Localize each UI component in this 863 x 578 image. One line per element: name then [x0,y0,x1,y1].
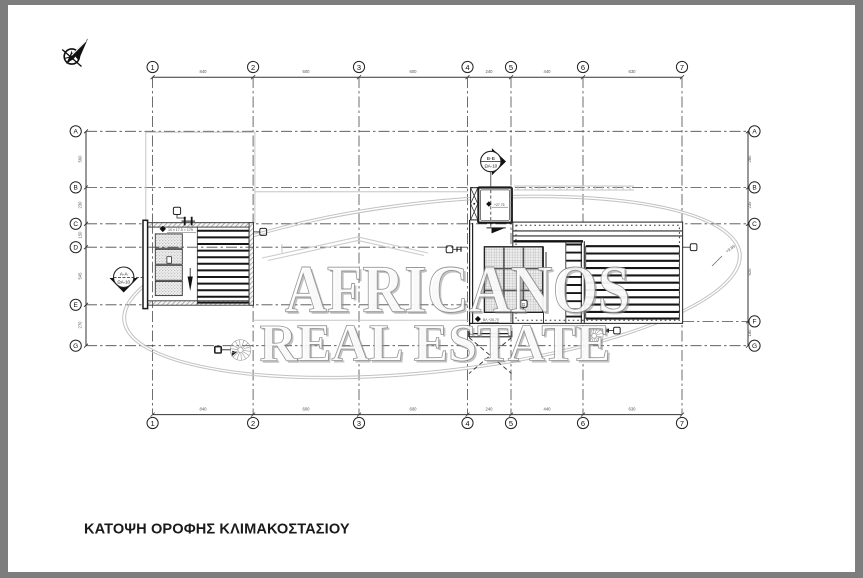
svg-text:600: 600 [410,407,418,412]
svg-text:3: 3 [357,419,361,428]
svg-text:840: 840 [200,69,208,74]
svg-text:2: 2 [251,419,255,428]
svg-text:F: F [753,319,757,326]
svg-text:4: 4 [465,419,469,428]
svg-text:270: 270 [78,321,83,329]
svg-text:545: 545 [78,272,83,280]
svg-text:+27.75: +27.75 [494,203,505,207]
svg-text:230: 230 [78,201,83,209]
svg-text:1: 1 [151,63,155,72]
svg-text:235: 235 [747,201,752,209]
svg-text:REAL ESTATE: REAL ESTATE [260,315,611,373]
svg-text:ΚΑΤΟΨΗ ΟΡΟΦΗΣ ΚΛΙΜΑΚΟΣΤΑΣΙΟΥ: ΚΑΤΟΨΗ ΟΡΟΦΗΣ ΚΛΙΜΑΚΟΣΤΑΣΙΟΥ [84,522,350,538]
svg-text:240: 240 [486,407,494,412]
svg-text:6: 6 [581,63,585,72]
svg-text:E: E [74,302,79,309]
svg-text:440: 440 [544,407,552,412]
svg-text:280: 280 [747,155,752,163]
svg-text:D: D [73,245,78,252]
svg-text:180: 180 [747,329,752,337]
svg-text:560: 560 [78,155,83,163]
svg-text:920: 920 [747,268,752,276]
svg-text:840: 840 [200,407,208,412]
svg-text:ΩA-10: ΩA-10 [117,280,130,285]
svg-text:6: 6 [581,419,585,428]
svg-text:600: 600 [303,407,311,412]
svg-text:10 x 17.5 = 175: 10 x 17.5 = 175 [168,228,193,232]
svg-text:630: 630 [629,407,637,412]
svg-text:600: 600 [303,69,311,74]
svg-text:A: A [752,129,757,136]
svg-text:630: 630 [629,69,637,74]
svg-text:B: B [752,185,756,192]
svg-text:ΩA-10: ΩA-10 [485,164,498,169]
svg-text:3: 3 [357,63,361,72]
svg-text:2: 2 [251,63,255,72]
svg-text:440: 440 [544,69,552,74]
svg-text:B: B [74,185,78,192]
svg-text:1: 1 [151,419,155,428]
svg-text:G: G [752,343,757,350]
svg-text:A: A [74,129,79,136]
svg-text:C: C [752,221,757,228]
svg-text:G: G [73,343,78,350]
svg-text:B-B: B-B [487,156,495,162]
svg-text:5: 5 [509,63,513,72]
svg-text:4: 4 [465,63,469,72]
svg-text:C: C [73,221,78,228]
svg-text:600: 600 [410,69,418,74]
svg-text:5: 5 [509,419,513,428]
svg-text:7: 7 [680,63,684,72]
svg-text:A-A: A-A [120,272,129,278]
svg-text:240: 240 [486,69,494,74]
svg-text:7: 7 [680,419,684,428]
svg-text:150: 150 [78,231,83,239]
